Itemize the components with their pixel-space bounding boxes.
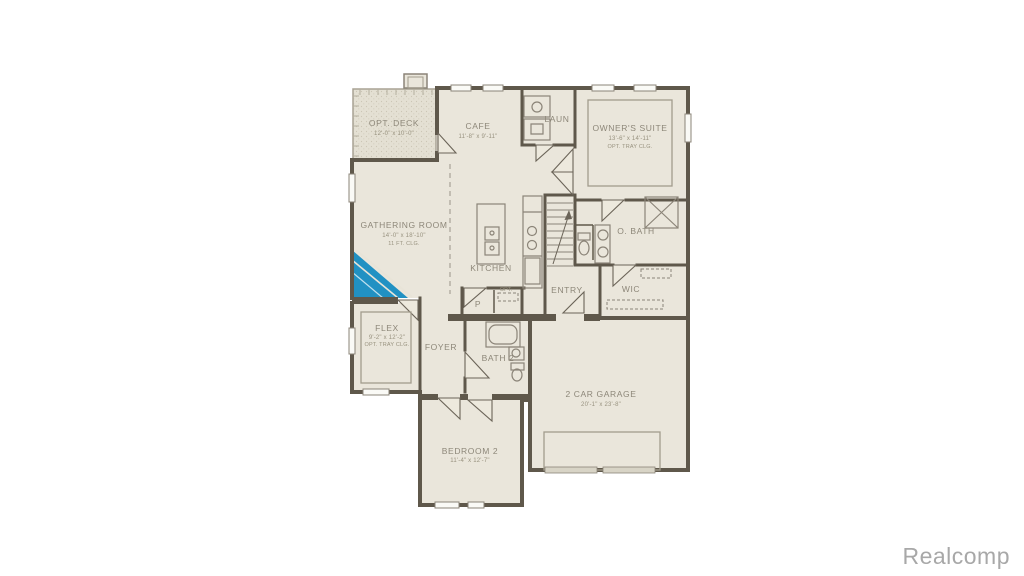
room-label-owners-bath: O. BATH [617,226,655,236]
room-label-pantry: P [475,299,481,309]
room-note-owners-suite: OPT. TRAY CLG. [608,144,653,150]
room-dims-garage: 20'-1" x 23'-8" [581,402,621,408]
room-label-garage: 2 CAR GARAGE [566,389,637,399]
room-label-kitchen: KITCHEN [470,263,512,273]
room-dims-deck: 12'-0" x 10'-0" [374,131,414,137]
realcomp-watermark: Realcomp [902,543,1010,570]
room-label-owners-suite: OWNER'S SUITE [592,123,667,133]
room-dims-flex: 9'-2" x 12'-2" [369,335,405,341]
room-note-gathering: 11 FT. CLG. [388,241,420,247]
room-label-deck: OPT. DECK [369,118,419,128]
floor-plan: OPT. DECK 12'-0" x 10'-0" CAFE 11'-8" x … [0,0,1024,576]
room-label-bath2: BATH 2 [482,353,515,363]
fireplace-chase [404,74,427,88]
room-label-entry: ENTRY [551,285,583,295]
room-label-wic: WIC [622,284,640,294]
garage-door-panel-2 [603,467,655,473]
room-label-foyer: FOYER [425,342,457,352]
room-dims-gathering: 14'-0" x 18'-10" [382,233,425,239]
room-label-flex: FLEX [375,323,399,333]
room-label-gathering: GATHERING ROOM [360,220,447,230]
room-label-laundry: LAUN [544,114,569,124]
label-deck: OPT. DECK 12'-0" x 10'-0" [369,118,419,137]
floor-plan-page: OPT. DECK 12'-0" x 10'-0" CAFE 11'-8" x … [0,0,1024,576]
garage-door-panel-1 [545,467,597,473]
room-dims-bedroom2: 11'-4" x 12'-7" [450,458,489,464]
room-note-flex: OPT. TRAY CLG. [365,342,410,348]
room-dims-cafe: 11'-8" x 9'-11" [458,134,497,140]
room-label-opt-closet: OPT. [500,287,513,293]
room-label-cafe: CAFE [465,121,490,131]
room-label-bedroom2: BEDROOM 2 [442,446,498,456]
room-dims-owners-suite: 13'-6" x 14'-11" [609,136,652,142]
